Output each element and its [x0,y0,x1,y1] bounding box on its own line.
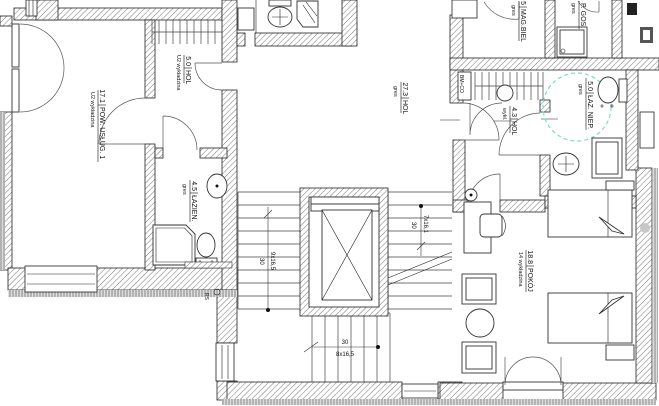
room-name: ŁAZIEN. [190,195,197,222]
column [497,85,513,101]
stairs-upper-left [152,20,222,44]
column [640,223,650,233]
shower [153,225,195,265]
dim-text: 9x16,5 [269,252,275,271]
stairs-left-flight [238,192,302,309]
vanity-counter [185,262,232,268]
stairs-right-flight [388,192,452,309]
cabinet [238,8,254,30]
room-label-mag-biel: 5 MAG.BIEL gres [510,1,527,42]
door [195,63,222,90]
round-table [466,309,494,337]
window [402,384,438,398]
window [26,0,37,16]
door [462,103,499,140]
bathroom-laz-niep-fixtures [543,73,627,178]
toilet-tank [619,79,627,102]
room-finish: gres [570,3,576,14]
room-finish: U2 wykładzina [175,55,181,91]
floor-plan-svg: 17.1 POW. USŁUG. 1 U2 wykładzina 5.0 HOL… [0,0,659,406]
room-name: ŁAZ. NIEP. [586,95,593,129]
room-label-p-gos: P. GOS. gres [570,1,586,29]
nightstand [606,345,634,360]
room-name: HOL [510,121,517,136]
threshold-lines [440,119,558,121]
toilet [197,233,215,257]
door-panel [452,0,477,18]
stairs-upper-right [458,72,543,101]
p-gos-fixtures [557,27,587,57]
dim-text: 8x16,5 [336,352,355,358]
toilet [598,77,618,103]
entry-double-door [12,24,64,112]
elevator [300,188,388,316]
room-area: 5.0 [586,81,593,91]
floor-plan-canvas: 17.1 POW. USŁUG. 1 U2 wykładzina 5.0 HOL… [0,0,659,406]
toilet-tank [269,0,291,6]
room-finish: wykł. [501,107,507,121]
room-finish: 14 wykładzina [517,252,523,287]
window [25,266,97,292]
room-name: HOL [401,100,408,115]
room-area: 4.3 [510,107,517,117]
room-name: POKÓJ [526,268,535,292]
bathroom-top-fixtures [238,0,318,33]
room-name: HOL [184,70,191,85]
dim-stairs-bottom: 30 8x16,5 [336,340,355,358]
room-area: 5 [519,1,526,5]
balcony-double-door [503,357,563,390]
dim-stairs-left: 9x16,5 30 [258,252,275,271]
window [216,343,234,381]
door [163,116,197,150]
room-area: 5.0 [184,56,191,66]
elevator-door [311,197,379,204]
shaft-label: BM+CO [458,75,464,93]
dim-text: 30 [258,258,264,265]
shaft [627,3,637,15]
room-name: POW. USŁUG. 1 [98,107,105,159]
room-finish: gres [510,5,516,16]
door-panel [640,112,654,148]
room-label-pokoj: 18.8 POKÓJ 14 wykładzina [517,250,535,292]
room-finish: U2 wykładzina [89,92,95,128]
room-finish: gres [392,86,398,97]
furniture-pokoj [462,181,634,373]
room-label-laz-niep: 5.0 ŁAZ. NIEP. gres [577,78,594,130]
chair [480,214,502,237]
riser-label: RS [203,293,209,301]
room-area: 27.3 [401,82,408,96]
dim-text: 7x16,1 [422,215,428,234]
room-label-hol-5: 5.0 HOL U2 wykładzina [175,55,192,91]
room-finish: gres [577,84,583,95]
room-area: 17.1 [98,89,105,103]
room-label-pow-uslug: 17.1 POW. USŁUG. 1 U2 wykładzina [89,89,106,162]
room-finish: gres [181,184,187,195]
bed [548,293,632,343]
door [470,103,502,135]
room-label-hol-27: 27.3 HOL gres [392,82,409,115]
shelf [606,181,634,190]
dim-text: 30 [410,222,416,229]
bed [548,190,632,237]
room-label-lazienka: 4.5 ŁAZIEN. gres [181,180,198,222]
room-name: MAG.BIEL [519,9,526,42]
room-name: P. GOS. [579,3,586,28]
dim-text: 30 [342,340,349,346]
room-area: 18.8 [526,250,533,264]
room-area: 4.5 [190,181,197,191]
